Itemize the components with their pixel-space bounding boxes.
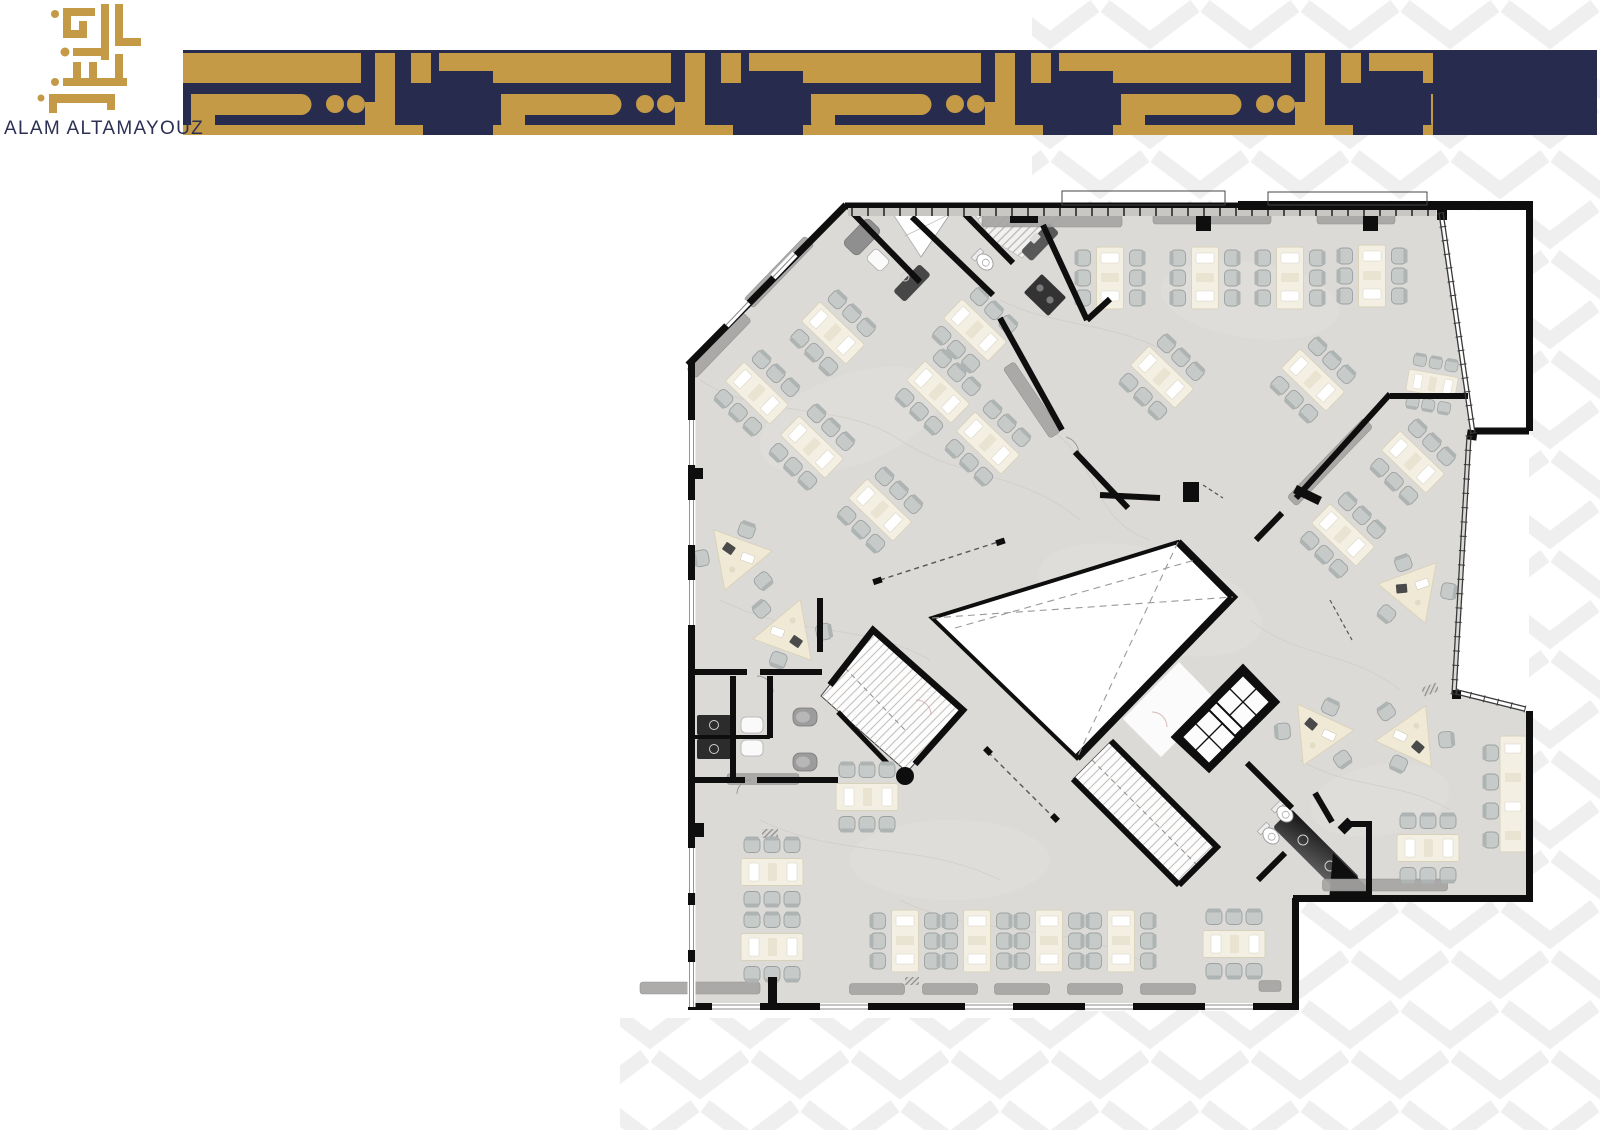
desk-cluster [1014,910,1085,972]
window [1205,1003,1253,1011]
band-solid-cap [1433,50,1597,135]
sideboard [995,984,1050,995]
logo-text: ALAM ALTAMAYOUZ [4,118,204,139]
window [820,1003,868,1011]
window [712,1003,760,1011]
window [688,905,696,950]
desk-cluster [1397,813,1459,884]
window [688,848,696,893]
desk-cluster [1255,247,1326,309]
desk-cluster [836,762,898,833]
desk-cluster [1337,245,1408,307]
window [688,500,696,545]
kufic-pattern-band [183,50,1597,135]
floor-plan [610,191,1558,1011]
window [965,1003,1013,1011]
sideboard [850,984,905,995]
sideboard [1141,984,1196,995]
desk-cluster [1203,909,1265,980]
sideboard [1068,984,1123,995]
sideboard [640,982,760,994]
desk-cluster [942,910,1013,972]
floor-plan-scene: ALAM ALTAMAYOUZ [0,0,1600,1130]
desk-cluster [1086,910,1157,972]
desk-cluster [741,837,803,908]
desk-cluster [870,910,941,972]
page: ALAM ALTAMAYOUZ [0,0,1600,1130]
sideboard [923,984,978,995]
window [688,962,696,1007]
window [688,420,696,465]
desk-cluster [1170,247,1241,309]
desk-cluster [741,912,803,983]
window [1085,1003,1133,1011]
sideboard [1259,981,1281,992]
sideboard [982,215,1122,227]
window [688,580,696,625]
